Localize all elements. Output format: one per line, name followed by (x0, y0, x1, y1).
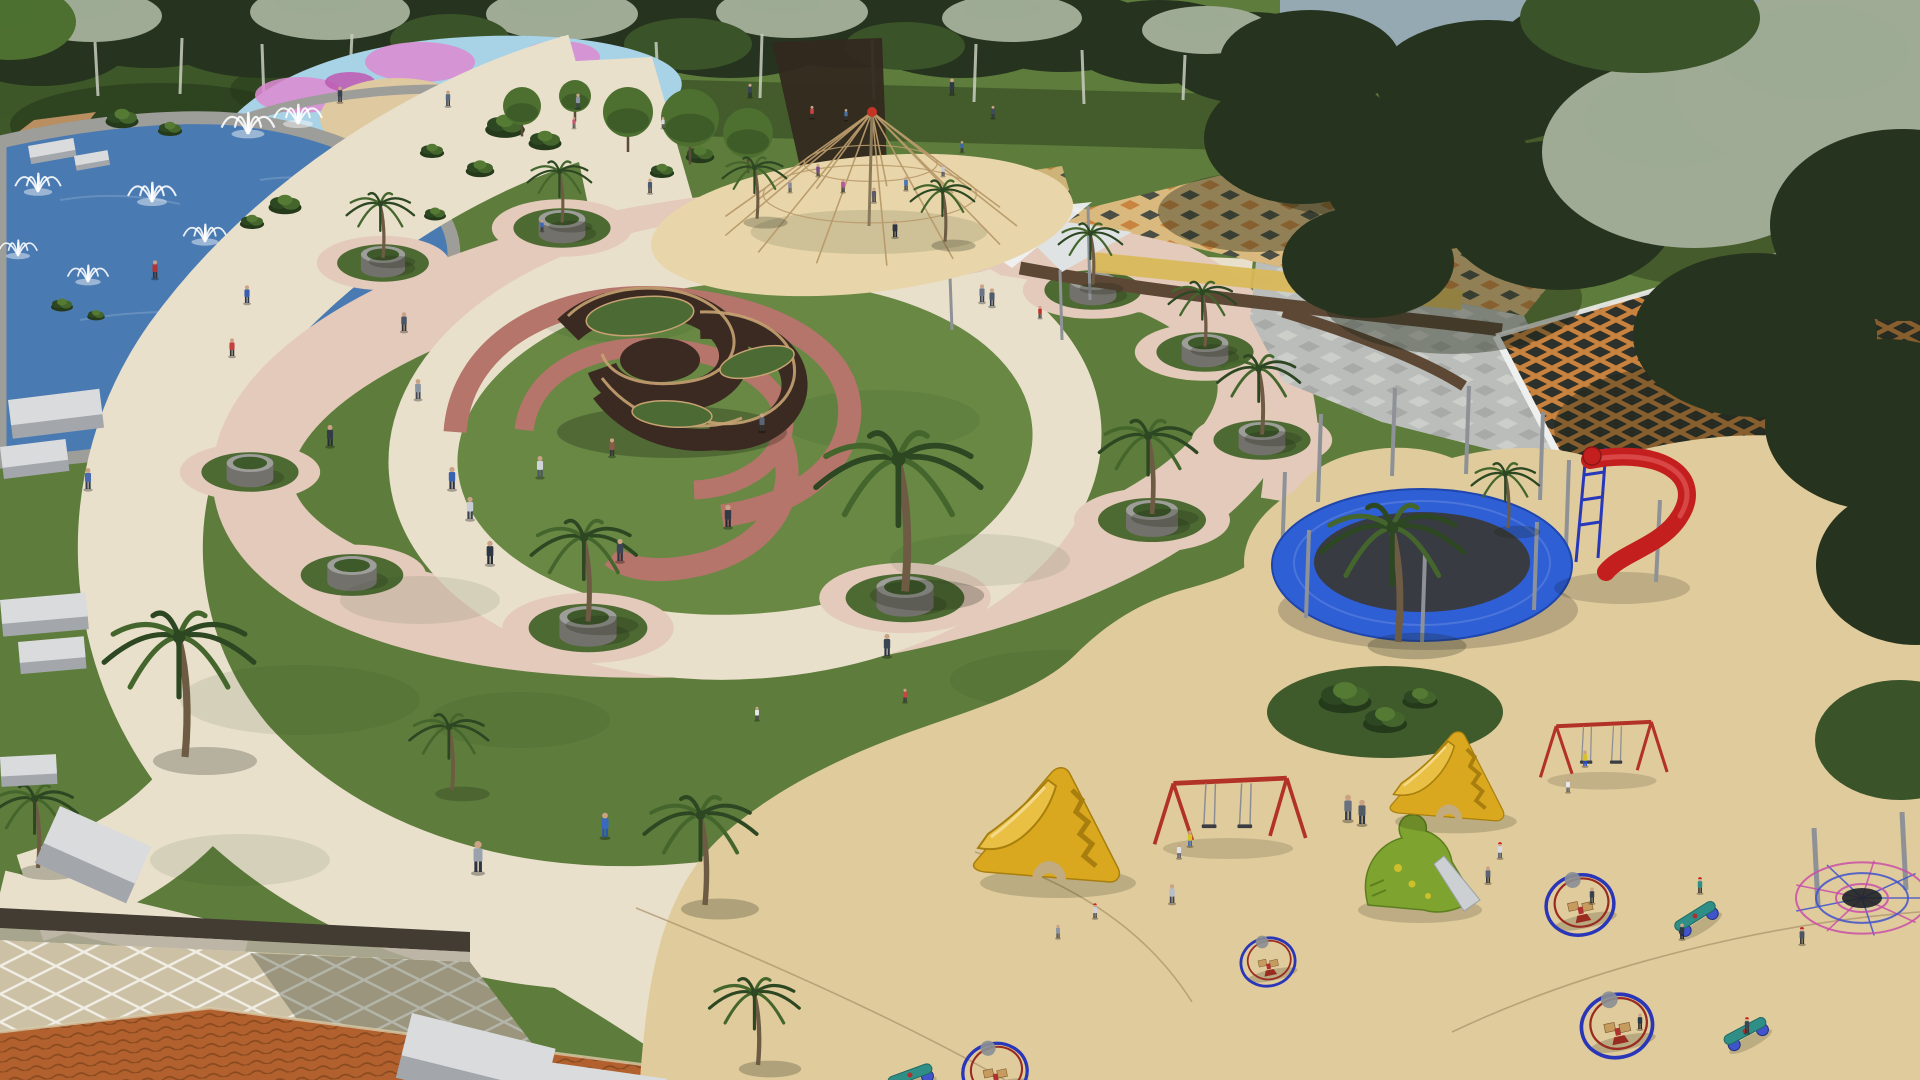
person-torso (991, 109, 995, 114)
palm-crown-center (752, 165, 757, 170)
person-shadow (815, 176, 821, 178)
grass-blotch (780, 390, 980, 450)
person-leg (453, 481, 455, 489)
person-head (230, 338, 234, 342)
person-shadow (1484, 882, 1492, 885)
person-shadow (608, 455, 616, 458)
person-leg (1682, 933, 1684, 939)
person-leg (1349, 811, 1352, 820)
person-head (86, 468, 91, 473)
person-leg (757, 715, 758, 720)
person-leg (904, 185, 905, 190)
person-leg (1568, 787, 1569, 792)
person-leg (962, 148, 963, 152)
person-torso (1583, 754, 1587, 761)
palm-crown-center (173, 631, 186, 644)
person-leg (576, 103, 577, 108)
person-head (1638, 1014, 1642, 1018)
person-leg (1093, 913, 1094, 918)
person-shadow (940, 176, 946, 178)
person-torso (327, 430, 333, 439)
person-torso (903, 692, 907, 698)
person-shadow (600, 836, 611, 840)
person-torso (467, 502, 473, 512)
person-shadow (1037, 318, 1043, 320)
person-leg (950, 88, 952, 94)
spinner-seat (1269, 959, 1278, 967)
person-leg (1345, 811, 1348, 820)
person-head (576, 94, 579, 97)
palm-shadow (153, 747, 257, 775)
person-leg (1173, 896, 1175, 903)
tree-canopy-front-crown (1233, 82, 1341, 148)
person-torso (648, 182, 652, 188)
person-shadow (615, 560, 625, 564)
person-leg (980, 296, 982, 302)
spinner-seat (983, 1069, 994, 1078)
person-leg (1177, 853, 1178, 858)
spinner-seat (1258, 959, 1267, 967)
person-leg (338, 96, 340, 102)
shrub-clump (1333, 682, 1357, 699)
person-head (416, 379, 421, 384)
person-shadow (471, 871, 485, 876)
person-shadow (1055, 938, 1061, 940)
person-head (893, 220, 897, 224)
person-leg (1179, 853, 1180, 858)
swing-shadow (1547, 772, 1656, 790)
person-shadow (1565, 792, 1571, 794)
person-torso (904, 180, 908, 186)
palm-shadow (1079, 283, 1123, 295)
person-shadow (447, 488, 457, 492)
person-head (1056, 925, 1059, 928)
person-head (617, 539, 622, 544)
park-render-stage: Aerial 3D render of a landscaped public … (0, 0, 1920, 1080)
shrub-clump (278, 195, 293, 206)
person-leg (612, 450, 614, 456)
tree-trunk (1082, 50, 1084, 104)
tree-canopy-front-crown (1247, 17, 1346, 67)
person-shadow (485, 563, 496, 567)
palm-crown-center (377, 201, 383, 207)
grass-blotch (150, 834, 330, 886)
person-shadow (990, 118, 996, 120)
person-leg (1800, 938, 1802, 944)
person-torso (893, 224, 898, 231)
person-shadow (891, 236, 899, 239)
person-torso (1093, 907, 1097, 913)
person-shadow (151, 277, 159, 280)
fountain-jet (298, 105, 299, 124)
person-torso (229, 342, 234, 350)
person-torso (537, 461, 543, 470)
person-leg (621, 553, 623, 561)
person-leg (650, 188, 651, 193)
palm-crown-center (1386, 522, 1398, 534)
grass-blotch (340, 576, 500, 624)
tree-canopy-crown (1162, 8, 1232, 32)
person-torso (844, 112, 847, 117)
person-head (487, 541, 492, 546)
swing-chain (1214, 783, 1215, 824)
person-head (467, 497, 472, 502)
person-torso (244, 289, 249, 297)
person-leg (1583, 760, 1585, 766)
person-torso (941, 167, 945, 172)
round-tree-shade (506, 103, 538, 122)
palm-shadow (931, 240, 975, 252)
person-shadow (445, 105, 452, 108)
shrub-clump (165, 122, 176, 130)
person-leg (762, 425, 764, 431)
shrub-clump (57, 299, 67, 306)
person-leg (245, 297, 247, 303)
person-torso (1169, 889, 1174, 897)
person-shadow (1187, 845, 1194, 848)
person-shadow (723, 526, 733, 530)
swing-chain (1250, 783, 1251, 824)
person-torso (1698, 881, 1702, 888)
person-leg (729, 519, 731, 527)
palm-shadow (1131, 509, 1199, 527)
grass-blotch (890, 534, 1070, 586)
person-shadow (575, 107, 582, 109)
palm-crown-center (1502, 471, 1508, 477)
swing-seat (1610, 761, 1622, 764)
person-leg (479, 861, 482, 872)
person-leg (416, 392, 418, 399)
person-shadow (228, 355, 236, 358)
person-leg (1359, 815, 1361, 824)
person-head (811, 106, 814, 109)
person-leg (153, 272, 155, 278)
person-leg (1190, 840, 1192, 846)
person-leg (982, 296, 984, 302)
swing-seat (1237, 824, 1252, 828)
person-leg (872, 197, 873, 202)
person-shadow (871, 201, 878, 203)
person-head (1039, 306, 1042, 309)
person-leg (247, 297, 249, 303)
person-head (950, 79, 954, 83)
dino-spot (1409, 881, 1416, 888)
person-torso (1358, 805, 1365, 815)
person-torso (401, 317, 406, 325)
person-leg (467, 511, 469, 519)
person-leg (1498, 852, 1500, 858)
fountain-jet (152, 183, 153, 202)
person-shadow (978, 301, 986, 304)
person-leg (903, 697, 904, 702)
person-leg (1486, 877, 1488, 883)
person-leg (474, 861, 477, 872)
swing-chain (1591, 726, 1592, 760)
person-leg (446, 100, 448, 106)
person-torso (816, 167, 820, 172)
person-torso (338, 90, 342, 97)
person-shadow (1744, 1032, 1751, 1035)
person-head (1583, 751, 1587, 755)
spinner-seat (1567, 902, 1578, 912)
person-torso (415, 384, 421, 393)
person-leg (663, 124, 664, 128)
person-leg (1039, 314, 1040, 318)
person-leg (1363, 815, 1365, 824)
person-leg (942, 172, 943, 176)
person-head (841, 179, 844, 182)
person-leg (491, 556, 493, 564)
person-shadow (758, 430, 766, 433)
person-leg (748, 92, 749, 97)
person-torso (1486, 870, 1491, 877)
person-leg (471, 511, 473, 519)
person-leg (789, 188, 790, 192)
planter-node (180, 443, 320, 501)
person-head (725, 505, 730, 510)
person-head (992, 106, 995, 109)
person-shadow (903, 190, 909, 192)
person-torso (979, 288, 984, 296)
palm-crown-center (751, 989, 759, 997)
person-shadow (243, 302, 251, 305)
person-torso (617, 544, 623, 554)
palm-shadow (548, 221, 592, 233)
person-leg (1802, 938, 1804, 944)
person-head (990, 288, 994, 292)
person-shadow (1637, 1028, 1644, 1031)
round-tree-shade (665, 114, 714, 143)
shrub-clump (474, 160, 487, 169)
person-leg (818, 172, 819, 176)
person-leg (755, 715, 756, 720)
palm-crown-center (891, 452, 905, 466)
person-torso (884, 639, 890, 649)
person-leg (874, 197, 875, 202)
fountain-jet (205, 224, 206, 242)
shrub-clump (694, 146, 707, 155)
person-leg (1585, 760, 1587, 766)
bench (0, 754, 57, 787)
person-leg (602, 828, 604, 837)
person-head (817, 164, 820, 167)
person-shadow (949, 93, 956, 96)
person-leg (1638, 1023, 1640, 1029)
palm-shadow (681, 899, 759, 920)
palm-crown-center (1199, 290, 1205, 296)
person-head (573, 117, 576, 120)
person-shadow (840, 192, 846, 194)
person-head (942, 164, 945, 167)
spiral-slide-shadow (1554, 572, 1690, 604)
person-shadow (1679, 938, 1686, 941)
round-tree-shade (727, 129, 770, 154)
person-shadow (572, 128, 577, 130)
person-torso (152, 264, 157, 272)
person-leg (230, 350, 232, 356)
palm-crown-center (1255, 365, 1262, 372)
sculpture-core (620, 338, 700, 382)
dino-spot (1425, 893, 1431, 899)
person-leg (573, 124, 574, 128)
person-leg (1590, 897, 1592, 903)
person-leg (895, 231, 897, 237)
person-torso (1188, 834, 1192, 841)
fountain-jet (248, 113, 249, 134)
person-shadow (647, 192, 654, 194)
person-shadow (882, 655, 892, 659)
person-head (980, 284, 984, 288)
person-leg (888, 648, 890, 656)
person-leg (1747, 1027, 1749, 1033)
person-torso (989, 292, 994, 300)
person-torso (449, 472, 455, 482)
palm-crown-center (31, 795, 38, 802)
person-torso (755, 710, 759, 716)
person-shadow (747, 97, 753, 99)
person-shadow (1697, 892, 1704, 895)
person-leg (1040, 314, 1041, 318)
person-shadow (1176, 857, 1183, 859)
person-leg (617, 553, 619, 561)
round-tree-shade (561, 94, 588, 110)
person-head (1566, 779, 1569, 782)
palm-shadow (870, 580, 984, 611)
person-head (884, 634, 889, 639)
palm-shadow (1368, 633, 1467, 660)
person-leg (606, 828, 608, 837)
person-head (662, 117, 665, 120)
person-head (845, 109, 848, 112)
person-torso (446, 94, 450, 101)
person-head (760, 413, 764, 417)
person-shadow (960, 152, 965, 154)
person-head (541, 220, 544, 223)
person-leg (943, 172, 944, 176)
dino-spot (1394, 864, 1402, 872)
person-torso (474, 848, 483, 861)
person-shadow (325, 445, 335, 448)
person-leg (331, 438, 333, 446)
person-leg (86, 481, 88, 489)
swing-shadow (1163, 838, 1293, 859)
person-shadow (787, 192, 793, 194)
bench (0, 593, 89, 637)
person-shadow (1092, 917, 1099, 919)
person-shadow (1497, 857, 1504, 860)
person-torso (572, 120, 575, 125)
person-torso (1638, 1017, 1642, 1024)
person-torso (725, 510, 731, 520)
palm-shadow (1191, 344, 1238, 357)
person-head (1590, 888, 1594, 892)
person-leg (662, 124, 663, 128)
person-torso (1800, 931, 1805, 938)
person-leg (846, 116, 847, 120)
person-leg (328, 438, 330, 446)
person-torso (1590, 891, 1594, 898)
person-leg (402, 324, 404, 331)
person-shadow (1589, 902, 1596, 905)
person-leg (993, 114, 994, 118)
person-leg (340, 96, 342, 102)
person-torso (487, 546, 494, 556)
person-head (602, 813, 608, 819)
person-leg (574, 124, 575, 128)
person-leg (841, 187, 842, 192)
person-shadow (1168, 902, 1177, 905)
person-shadow (414, 398, 423, 401)
person-leg (760, 425, 762, 431)
person-leg (905, 697, 906, 702)
person-head (1170, 884, 1174, 888)
person-leg (541, 469, 543, 477)
person-head (328, 425, 333, 430)
tree-canopy-front-crown (1668, 266, 1802, 348)
person-leg (1640, 1023, 1642, 1029)
person-leg (817, 172, 818, 176)
person-leg (1170, 896, 1172, 903)
person-leg (419, 392, 421, 399)
palm-shadow (1494, 526, 1541, 539)
person-head (338, 87, 342, 91)
person-leg (487, 556, 489, 564)
fountain-jet (18, 240, 19, 256)
palm-crown-center (579, 533, 588, 542)
palm-shadow (739, 1061, 801, 1078)
person-head (961, 141, 964, 144)
shrub-clump (1412, 688, 1428, 699)
person-torso (950, 82, 954, 89)
person-leg (1500, 852, 1502, 858)
person-leg (990, 300, 992, 306)
park-aerial-render: Aerial 3D render of a landscaped public … (0, 0, 1920, 1080)
person-torso (661, 120, 664, 125)
pyramid-top-cap (867, 107, 877, 117)
shrub-clump (92, 310, 100, 316)
tree-trunk (760, 34, 762, 98)
bench-top (0, 754, 57, 776)
person-head (748, 84, 751, 87)
person-head (755, 707, 758, 710)
shrub-clump (657, 164, 668, 172)
person-head (538, 456, 543, 461)
shrub-clump (247, 215, 258, 223)
swing-seat (1202, 824, 1217, 828)
person-leg (811, 114, 812, 118)
person-leg (538, 469, 540, 477)
person-head (402, 312, 406, 316)
palm-crown-center (696, 810, 706, 820)
person-torso (788, 183, 792, 188)
person-head (1177, 844, 1180, 847)
person-leg (952, 88, 954, 94)
fountain-jet (38, 174, 39, 192)
person-shadow (902, 702, 908, 704)
person-shadow (83, 488, 93, 491)
round-tree-shade (607, 108, 650, 133)
person-shadow (540, 231, 545, 233)
slide-platform (1583, 447, 1601, 465)
person-shadow (661, 128, 666, 130)
person-head (1680, 924, 1684, 928)
person-head (1345, 795, 1351, 801)
tree-trunk (974, 44, 976, 102)
person-leg (992, 300, 994, 306)
person-torso (759, 417, 764, 425)
palm-shadow (435, 787, 490, 802)
grass-blotch (180, 665, 420, 735)
